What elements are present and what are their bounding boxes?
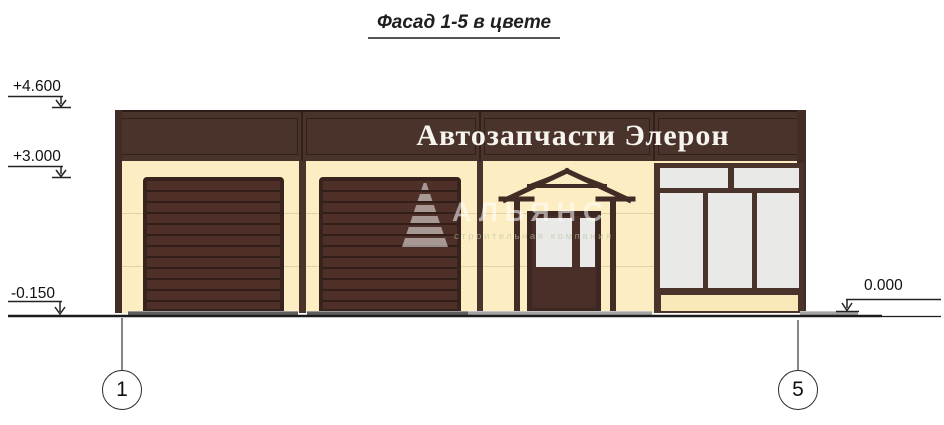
elevation-label-minus0150: -0.150	[11, 285, 55, 303]
elevation-label-zero: 0.000	[864, 277, 903, 295]
grid-axis-number: 5	[792, 378, 804, 402]
elevation-label-4600: +4.600	[13, 78, 61, 96]
entrance-post-right	[610, 198, 616, 313]
band-seam	[301, 112, 303, 163]
store-sign-text: Автозапчасти Элерон	[413, 119, 733, 153]
sidewalk	[800, 311, 858, 317]
elevation-marker-minus0150	[8, 302, 65, 315]
grid-axis-bubble-1: 1	[102, 370, 142, 410]
elevation-marker-3000	[8, 167, 71, 178]
grid-axis-number: 1	[116, 378, 128, 402]
facade-drawing: Фасад 1-5 в цвете +4.600 +3.000 -0.150 0…	[0, 0, 944, 425]
door-glass-left	[536, 218, 572, 267]
elevation-marker-4600	[8, 97, 71, 108]
entrance-post-left	[514, 198, 520, 313]
storefront-pane	[757, 193, 799, 288]
bay-divider	[477, 161, 483, 313]
storefront-transom-pane	[660, 168, 728, 188]
garage-door-2	[319, 177, 461, 313]
pilaster-left	[115, 110, 122, 313]
entrance-apron	[468, 311, 652, 317]
storefront-transom-pane	[734, 168, 799, 188]
drawing-title: Фасад 1-5 в цвете	[368, 12, 560, 39]
elevation-marker-zero	[836, 300, 941, 312]
driveway-apron	[307, 311, 470, 317]
building-facade: Автозапчасти Элерон	[115, 110, 806, 313]
elevation-label-3000: +3.000	[13, 148, 61, 166]
entrance-door	[527, 211, 601, 313]
storefront-spandrel	[661, 295, 798, 311]
storefront-pane	[660, 193, 703, 288]
storefront-window	[654, 163, 804, 313]
band-panel	[115, 114, 302, 159]
bay-divider	[299, 161, 306, 313]
storefront-pane	[708, 193, 752, 288]
door-glass-right	[580, 218, 595, 267]
grid-axis-leaders	[122, 318, 798, 370]
driveway-apron	[128, 311, 298, 317]
garage-door-1	[143, 177, 284, 313]
grid-axis-bubble-5: 5	[778, 370, 818, 410]
